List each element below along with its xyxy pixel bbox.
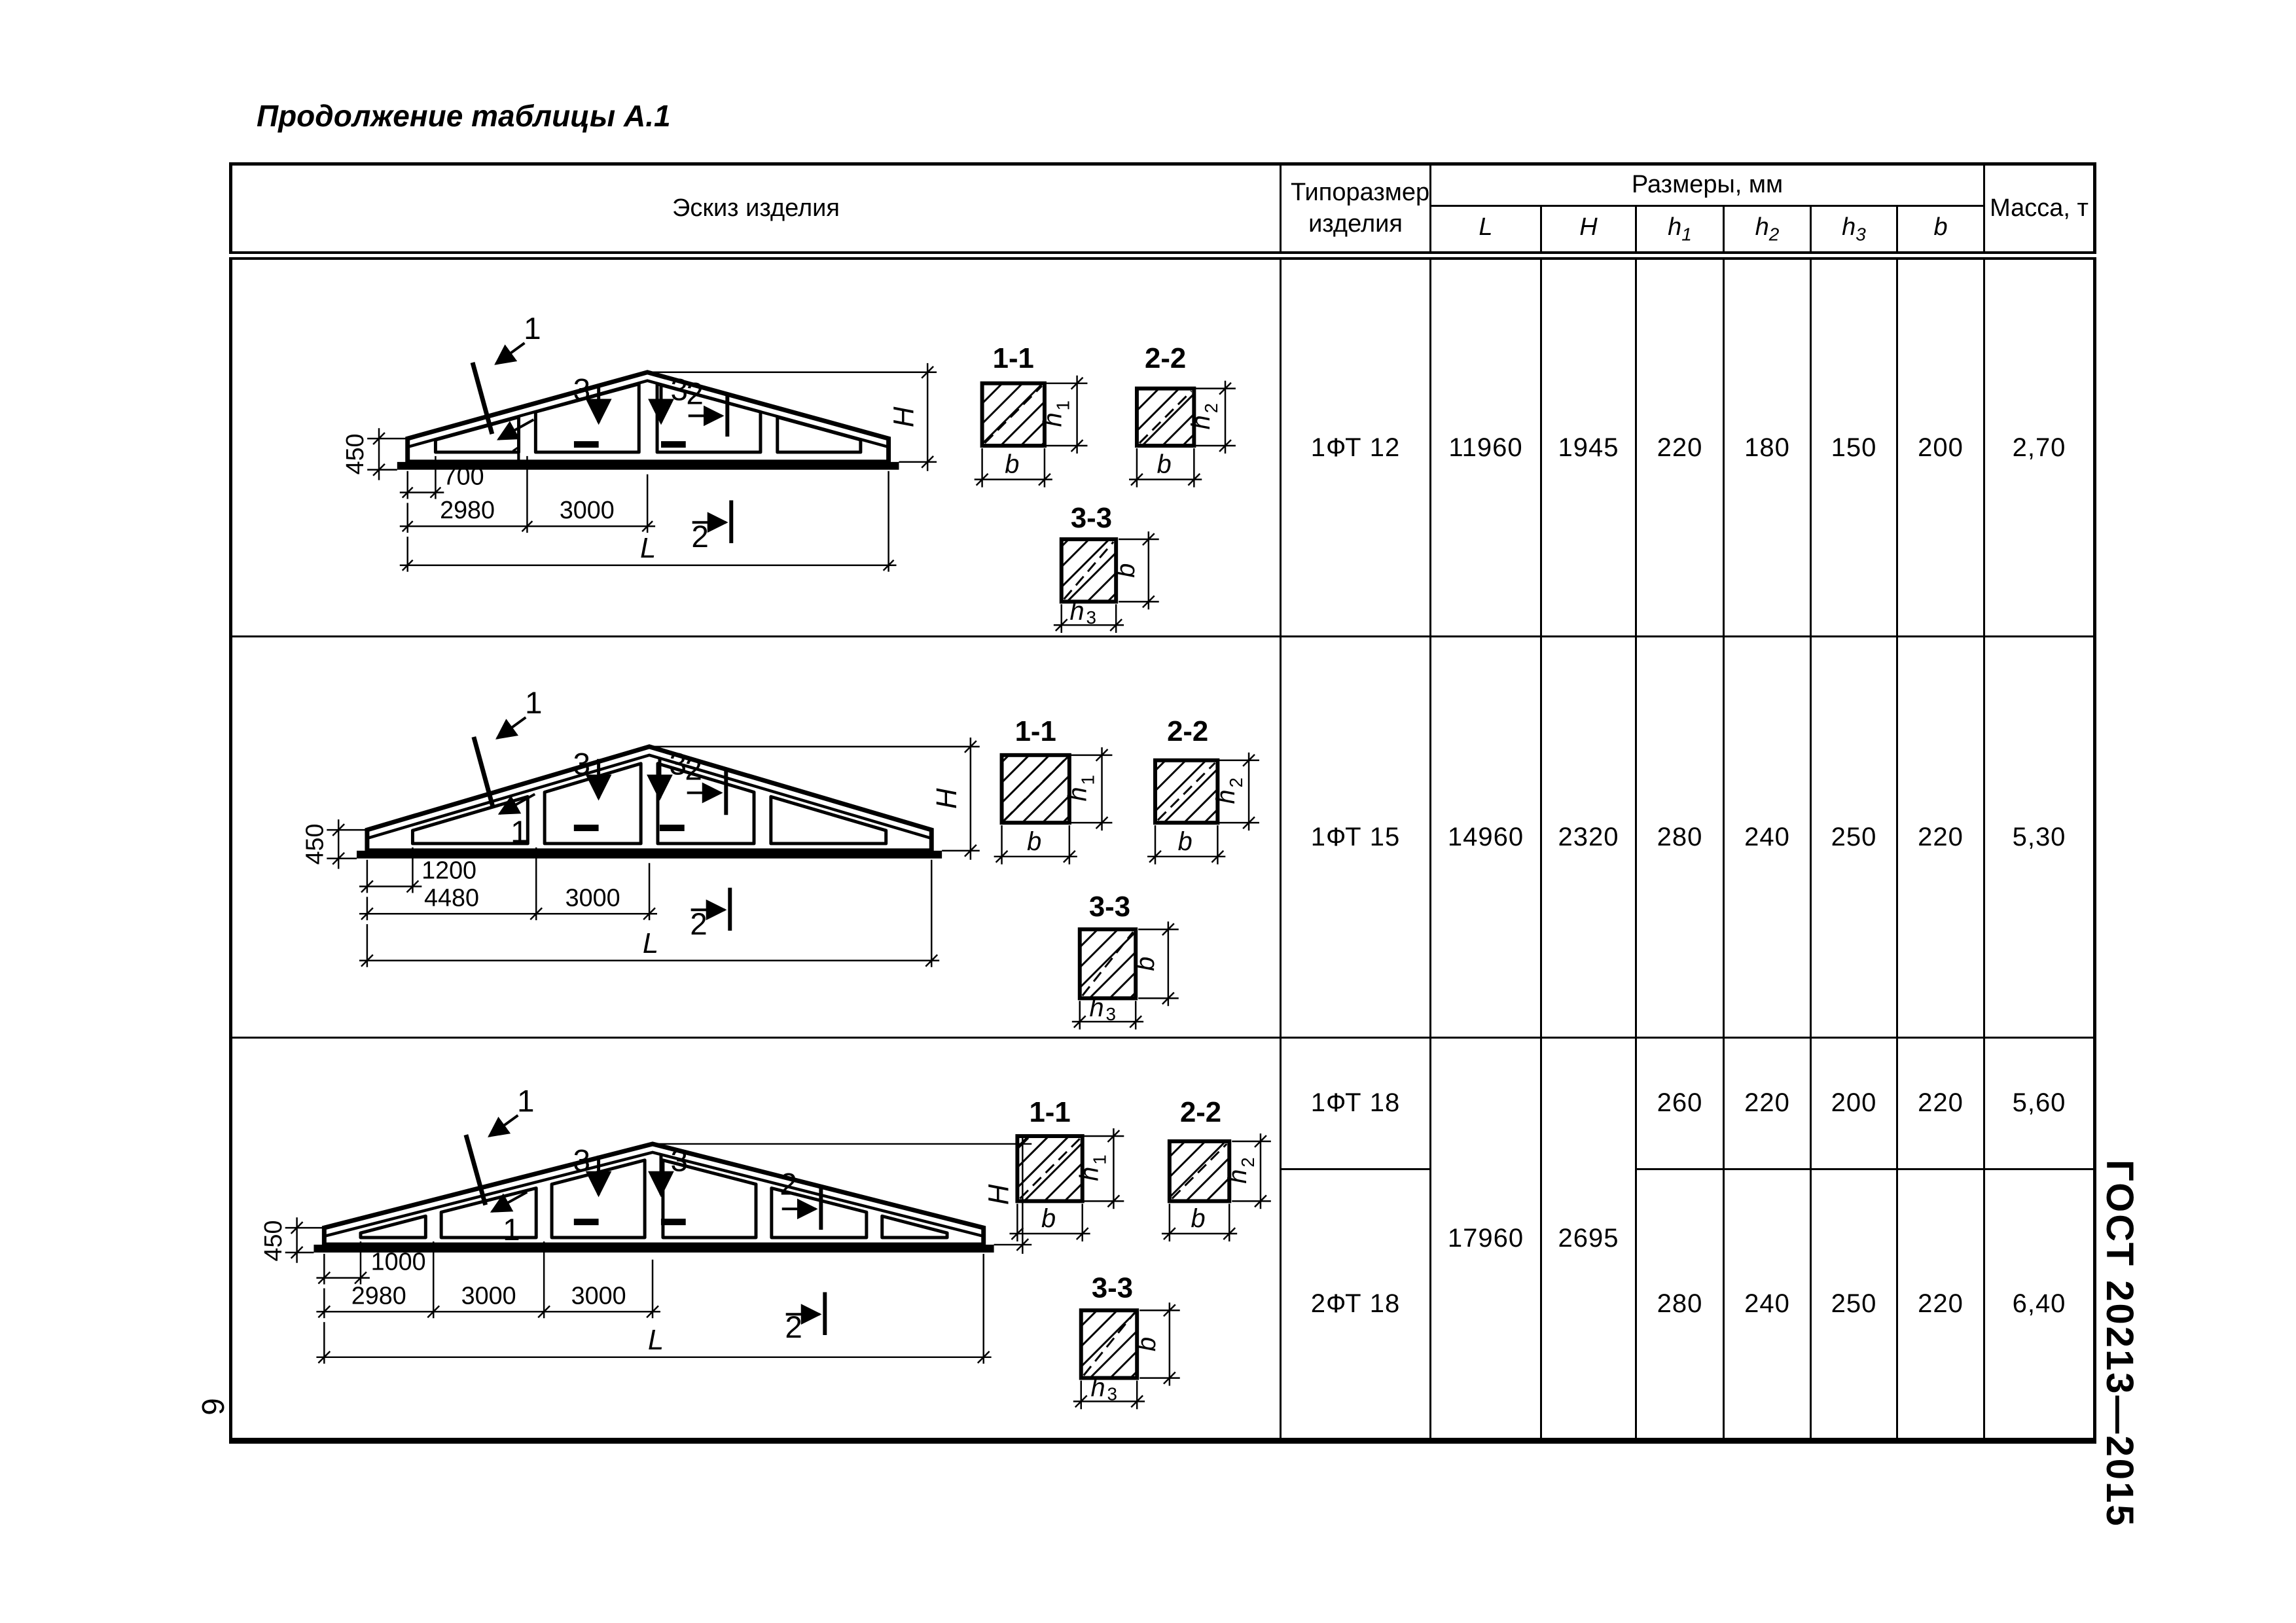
svg-text:1: 1 [503,1213,520,1247]
svg-text:b: b [1027,827,1041,855]
svg-text:h: h [1187,415,1215,429]
svg-text:3: 3 [1107,1383,1117,1404]
header-col-h1: h1 [1636,206,1724,256]
truss-outline [357,746,942,854]
svg-text:1-1: 1-1 [1029,1096,1070,1128]
svg-text:1-1: 1-1 [1015,715,1056,747]
svg-text:450: 450 [341,433,368,474]
svg-text:L: L [640,532,656,564]
svg-text:h: h [1091,1373,1105,1402]
svg-text:2: 2 [686,376,704,411]
svg-text:1: 1 [509,440,527,475]
svg-text:1: 1 [1078,775,1098,785]
svg-text:3: 3 [1105,1004,1115,1024]
sketch-1ft15: 450 1200 4480 3000 L H 1 1 [231,637,1281,1038]
cell-type: 1ФТ 15 [1281,637,1431,1038]
svg-text:2: 2 [691,520,709,554]
cell-b: 220 [1897,637,1984,1038]
svg-text:2-2: 2-2 [1167,715,1208,747]
svg-text:1: 1 [517,1084,535,1118]
cell-b: 200 [1897,256,1984,637]
cell-mass: 6,40 [1984,1169,2095,1440]
truss-drawing-1ft15: 450 1200 4480 3000 L H 1 1 [232,638,1280,1037]
svg-text:b: b [1132,1337,1161,1351]
svg-text:L: L [643,927,658,959]
svg-text:h: h [1223,1169,1252,1184]
svg-text:2: 2 [1238,1157,1258,1167]
svg-text:H: H [982,1184,1014,1205]
svg-text:2: 2 [1226,777,1246,787]
truss-drawing-ft18: 450 1000 2980 3000 3000 L H 1 [232,1039,1280,1438]
truss-drawing-1ft12: 450 700 2980 3000 L H 1 [232,260,1280,635]
header-col-h2: h2 [1724,206,1811,256]
svg-text:h: h [1090,993,1104,1022]
svg-text:1: 1 [1089,1154,1109,1164]
cell-h1: 260 [1636,1038,1724,1169]
svg-text:2: 2 [1201,403,1221,413]
svg-text:3000: 3000 [461,1281,516,1309]
gost-standard-label: ГОСТ 20213—2015 [2098,1160,2142,1528]
cell-h3: 250 [1811,637,1897,1038]
page-title: Продолжение таблицы А.1 [257,98,671,134]
header-type: Типоразмер изделия [1281,164,1431,256]
cell-type: 1ФТ 12 [1281,256,1431,637]
cell-h1: 220 [1636,256,1724,637]
document-page: Продолжение таблицы А.1 Эскиз изделия Ти… [0,0,2296,1623]
cell-h2: 240 [1724,1169,1811,1440]
svg-text:3: 3 [573,747,590,781]
svg-text:b: b [1191,1204,1206,1233]
svg-text:2-2: 2-2 [1180,1096,1221,1128]
header-sketch: Эскиз изделия [231,164,1281,256]
svg-text:h: h [1039,412,1067,427]
svg-text:3: 3 [573,373,591,408]
svg-text:2980: 2980 [351,1281,406,1309]
svg-text:3-3: 3-3 [1071,502,1112,534]
cell-L-merged: 17960 [1431,1038,1541,1441]
table-row: 450 700 2980 3000 L H 1 [231,256,2095,637]
cell-b: 220 [1897,1038,1984,1169]
cross-sections: 1-1 h1 b 2-2 [994,715,1259,1029]
cell-L: 14960 [1431,637,1541,1038]
cell-H-merged: 2695 [1541,1038,1636,1441]
svg-text:2: 2 [690,907,708,942]
svg-text:H: H [931,788,963,809]
cell-h2: 220 [1724,1038,1811,1169]
cell-H: 2320 [1541,637,1636,1038]
sketch-ft18: 450 1000 2980 3000 3000 L H 1 [231,1038,1281,1441]
cell-H: 1945 [1541,256,1636,637]
svg-text:h: h [1064,787,1092,801]
cell-h3: 200 [1811,1038,1897,1169]
table-row: 450 1000 2980 3000 3000 L H 1 [231,1038,2095,1169]
svg-text:H: H [888,406,920,427]
cell-h2: 180 [1724,256,1811,637]
cell-h3: 250 [1811,1169,1897,1440]
svg-text:700: 700 [443,463,484,490]
cell-b: 220 [1897,1169,1984,1440]
cell-h1: 280 [1636,637,1724,1038]
svg-text:450: 450 [259,1220,287,1261]
svg-text:1: 1 [1053,401,1073,410]
cell-mass: 2,70 [1984,256,2095,637]
products-table: Эскиз изделия Типоразмер изделия Размеры… [229,162,2096,1444]
sketch-1ft12: 450 700 2980 3000 L H 1 [231,256,1281,637]
svg-text:2: 2 [685,752,702,787]
cell-h3: 150 [1811,256,1897,637]
svg-text:h: h [1070,597,1085,626]
page-number: 6 [194,1398,230,1416]
cell-L: 11960 [1431,256,1541,637]
cell-mass: 5,60 [1984,1038,2095,1169]
table-row: 450 1200 4480 3000 L H 1 1 [231,637,2095,1038]
svg-text:1: 1 [524,312,541,346]
svg-text:1200: 1200 [422,856,476,883]
cell-h2: 240 [1724,637,1811,1038]
svg-text:h: h [1075,1167,1104,1181]
svg-text:h: h [1211,789,1240,804]
svg-text:3000: 3000 [571,1281,626,1309]
header-dims-group: Размеры, мм [1431,164,1984,206]
cell-mass: 5,30 [1984,637,2095,1038]
svg-text:3: 3 [671,1144,689,1179]
svg-text:2980: 2980 [440,496,495,524]
svg-text:b: b [1178,827,1193,855]
svg-text:b: b [1131,956,1160,971]
svg-text:b: b [1041,1204,1056,1233]
header-mass: Масса, т [1984,164,2095,256]
cross-sections: 1-1 h1 b 2-2 [975,342,1236,633]
svg-text:3-3: 3-3 [1089,891,1130,923]
svg-text:b: b [1111,563,1140,578]
svg-text:3: 3 [670,747,687,781]
header-col-h3: h3 [1811,206,1897,256]
svg-text:3: 3 [573,1144,590,1179]
cross-sections: 1-1 h1 b 2-2 [1009,1096,1270,1409]
svg-text:b: b [1157,450,1172,479]
svg-text:2: 2 [780,1167,797,1202]
svg-text:1: 1 [525,686,543,721]
header-col-H: H [1541,206,1636,256]
svg-text:L: L [648,1324,664,1356]
svg-text:3: 3 [671,373,689,408]
svg-text:4480: 4480 [424,883,479,911]
svg-text:1: 1 [511,814,528,849]
cell-type: 1ФТ 18 [1281,1038,1431,1169]
svg-text:3-3: 3-3 [1092,1272,1133,1304]
svg-text:1-1: 1-1 [993,342,1034,374]
svg-text:3000: 3000 [560,496,615,524]
cell-h1: 280 [1636,1169,1724,1440]
svg-text:3000: 3000 [565,883,620,911]
cell-type: 2ФТ 18 [1281,1169,1431,1440]
truss-outline [397,372,899,466]
svg-text:b: b [1005,450,1019,479]
svg-text:2-2: 2-2 [1145,342,1186,374]
svg-text:450: 450 [300,823,328,865]
svg-text:1000: 1000 [371,1248,426,1275]
svg-text:3: 3 [1086,607,1096,628]
header-col-L: L [1431,206,1541,256]
truss-outline [314,1144,994,1249]
header-col-b: b [1897,206,1984,256]
